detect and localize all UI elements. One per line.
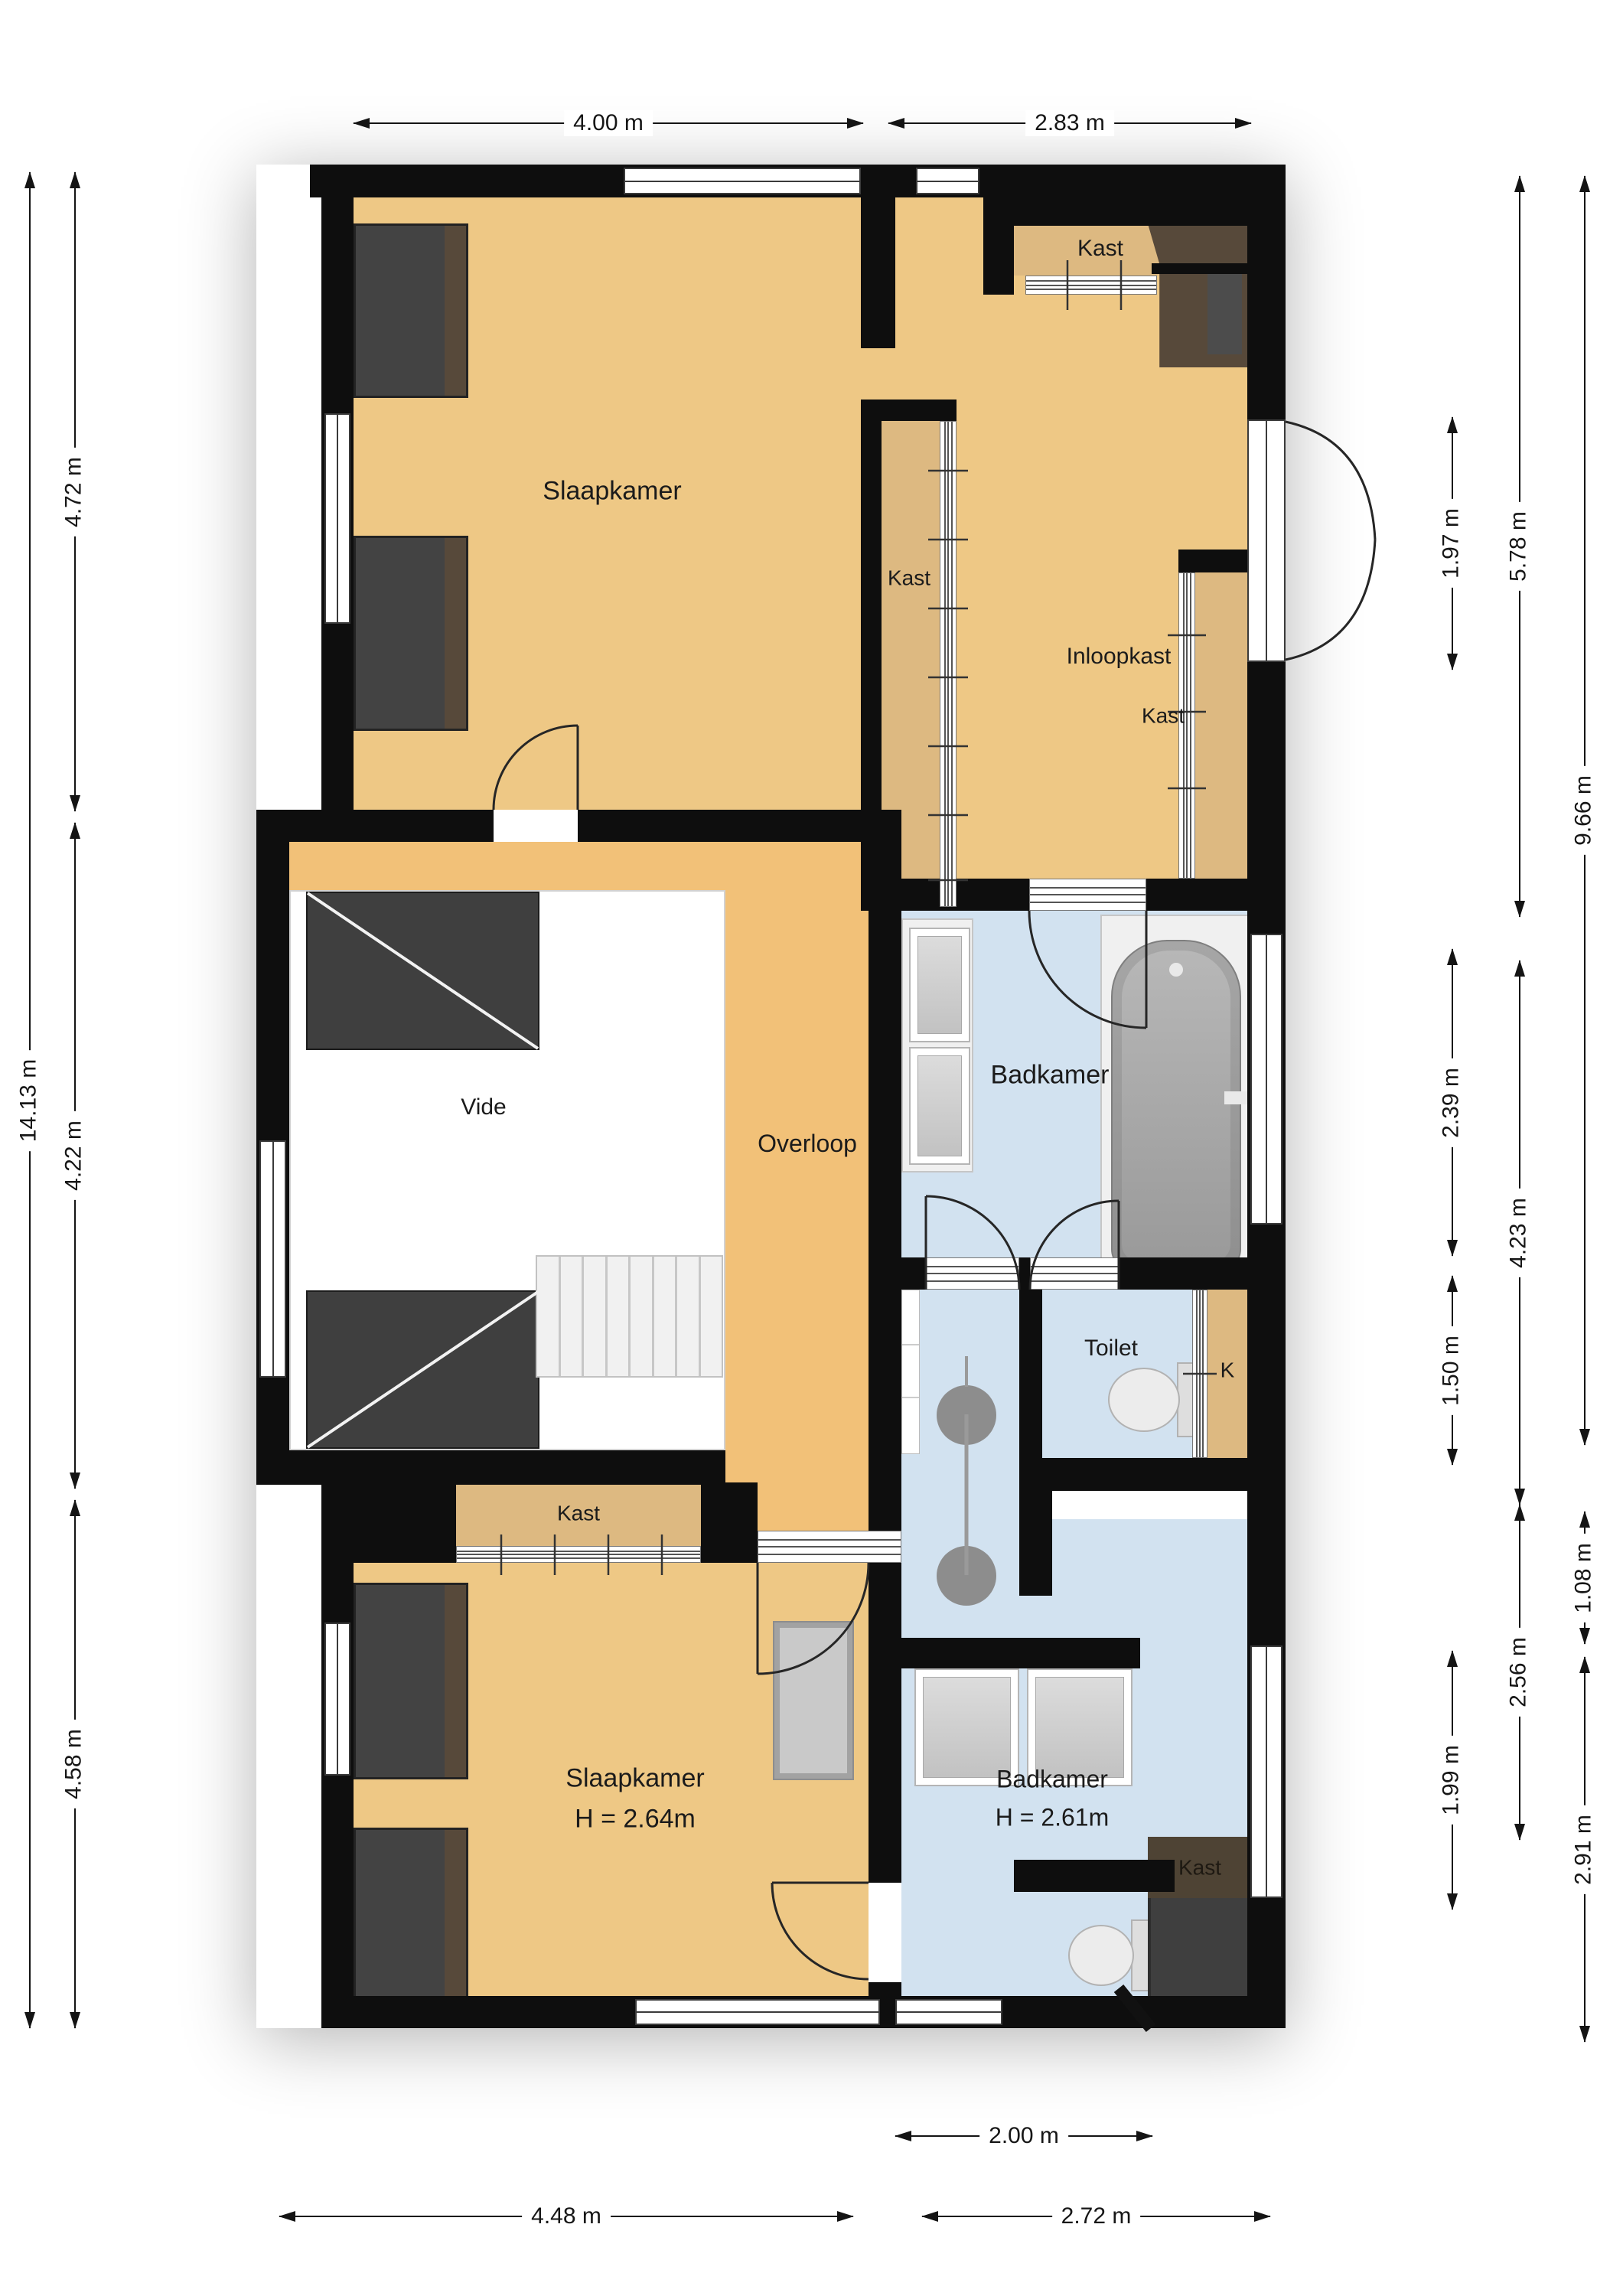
room-label-kast-top-right: Kast	[1077, 231, 1123, 267]
dimension-right-291: 2.91 m	[1584, 1657, 1586, 2042]
room-label-badkamer-top: Badkamer	[991, 1055, 1110, 1096]
room-label-kast-badkamer: Kast	[1178, 1851, 1221, 1883]
room-label-inloopkast: Inloopkast	[1067, 639, 1172, 675]
dimension-label: 14.13 m	[15, 1049, 41, 1150]
dimension-label: 1.08 m	[1571, 1534, 1597, 1623]
room-label-kast-tall: Kast	[888, 561, 930, 594]
room-name: Slaapkamer	[565, 1758, 704, 1799]
dimension-label: 2.56 m	[1506, 1628, 1532, 1717]
dimension-right-108: 1.08 m	[1584, 1512, 1586, 1644]
dimension-top-400: 4.00 m	[354, 122, 863, 124]
dimension-right-256: 2.56 m	[1519, 1505, 1520, 1840]
dimension-left-458: 4.58 m	[74, 1500, 76, 2028]
room-label-overloop: Overloop	[758, 1125, 857, 1163]
room-label-slaapkamer-top: Slaapkamer	[543, 471, 681, 512]
floorplan-canvas: Slaapkamer Kast Inloopkast Kast Kast Vid…	[0, 0, 1623, 2296]
dimension-right-423: 4.23 m	[1519, 960, 1520, 1505]
dimension-right-578: 5.78 m	[1519, 176, 1520, 917]
dimension-bottom-200: 2.00 m	[895, 2135, 1152, 2137]
room-label-slaapkamer-bottom: Slaapkamer H = 2.64m	[565, 1758, 704, 1838]
dimension-right-199: 1.99 m	[1452, 1651, 1453, 1910]
dimension-top-283: 2.83 m	[888, 122, 1251, 124]
room-label-badkamer-bottom: Badkamer H = 2.61m	[996, 1760, 1110, 1836]
room-label-toilet: Toilet	[1084, 1331, 1138, 1367]
dimension-left-472: 4.72 m	[74, 172, 76, 811]
dimension-right-966: 9.66 m	[1584, 176, 1586, 1445]
dimension-label: 4.22 m	[61, 1111, 87, 1200]
dimension-left-1413: 14.13 m	[29, 172, 31, 2028]
dimension-label: 2.91 m	[1571, 1805, 1597, 1894]
room-label-k-closet: K	[1221, 1353, 1235, 1386]
dimension-label: 9.66 m	[1571, 766, 1597, 855]
dimension-label: 1.99 m	[1439, 1736, 1465, 1825]
dimension-label: 1.97 m	[1439, 499, 1465, 588]
room-height: H = 2.61m	[996, 1799, 1110, 1837]
dimension-label: 2.72 m	[1052, 2203, 1141, 2229]
dimension-bottom-448: 4.48 m	[279, 2216, 853, 2217]
room-label-vide: Vide	[461, 1090, 507, 1126]
dimension-label: 2.00 m	[979, 2123, 1068, 2149]
dimension-left-422: 4.22 m	[74, 823, 76, 1489]
dimension-label: 4.72 m	[61, 448, 87, 536]
dimension-right-150: 1.50 m	[1452, 1276, 1453, 1465]
dimension-bottom-272: 2.72 m	[922, 2216, 1270, 2217]
room-label-kast-inloopkast: Kast	[1142, 699, 1185, 732]
room-name: Badkamer	[996, 1760, 1110, 1799]
dimension-label: 4.00 m	[564, 110, 653, 136]
dimension-label: 4.58 m	[61, 1720, 87, 1808]
dimension-label: 2.39 m	[1439, 1058, 1465, 1147]
dimension-right-197: 1.97 m	[1452, 417, 1453, 670]
dimension-right-239: 2.39 m	[1452, 949, 1453, 1256]
dimension-label: 1.50 m	[1439, 1326, 1465, 1415]
dimension-label: 4.48 m	[522, 2203, 611, 2229]
dimension-label: 2.83 m	[1025, 110, 1114, 136]
dimension-label: 5.78 m	[1506, 502, 1532, 591]
dimension-label: 4.23 m	[1506, 1189, 1532, 1277]
room-height: H = 2.64m	[565, 1799, 704, 1839]
room-label-kast-bottom: Kast	[557, 1496, 600, 1529]
